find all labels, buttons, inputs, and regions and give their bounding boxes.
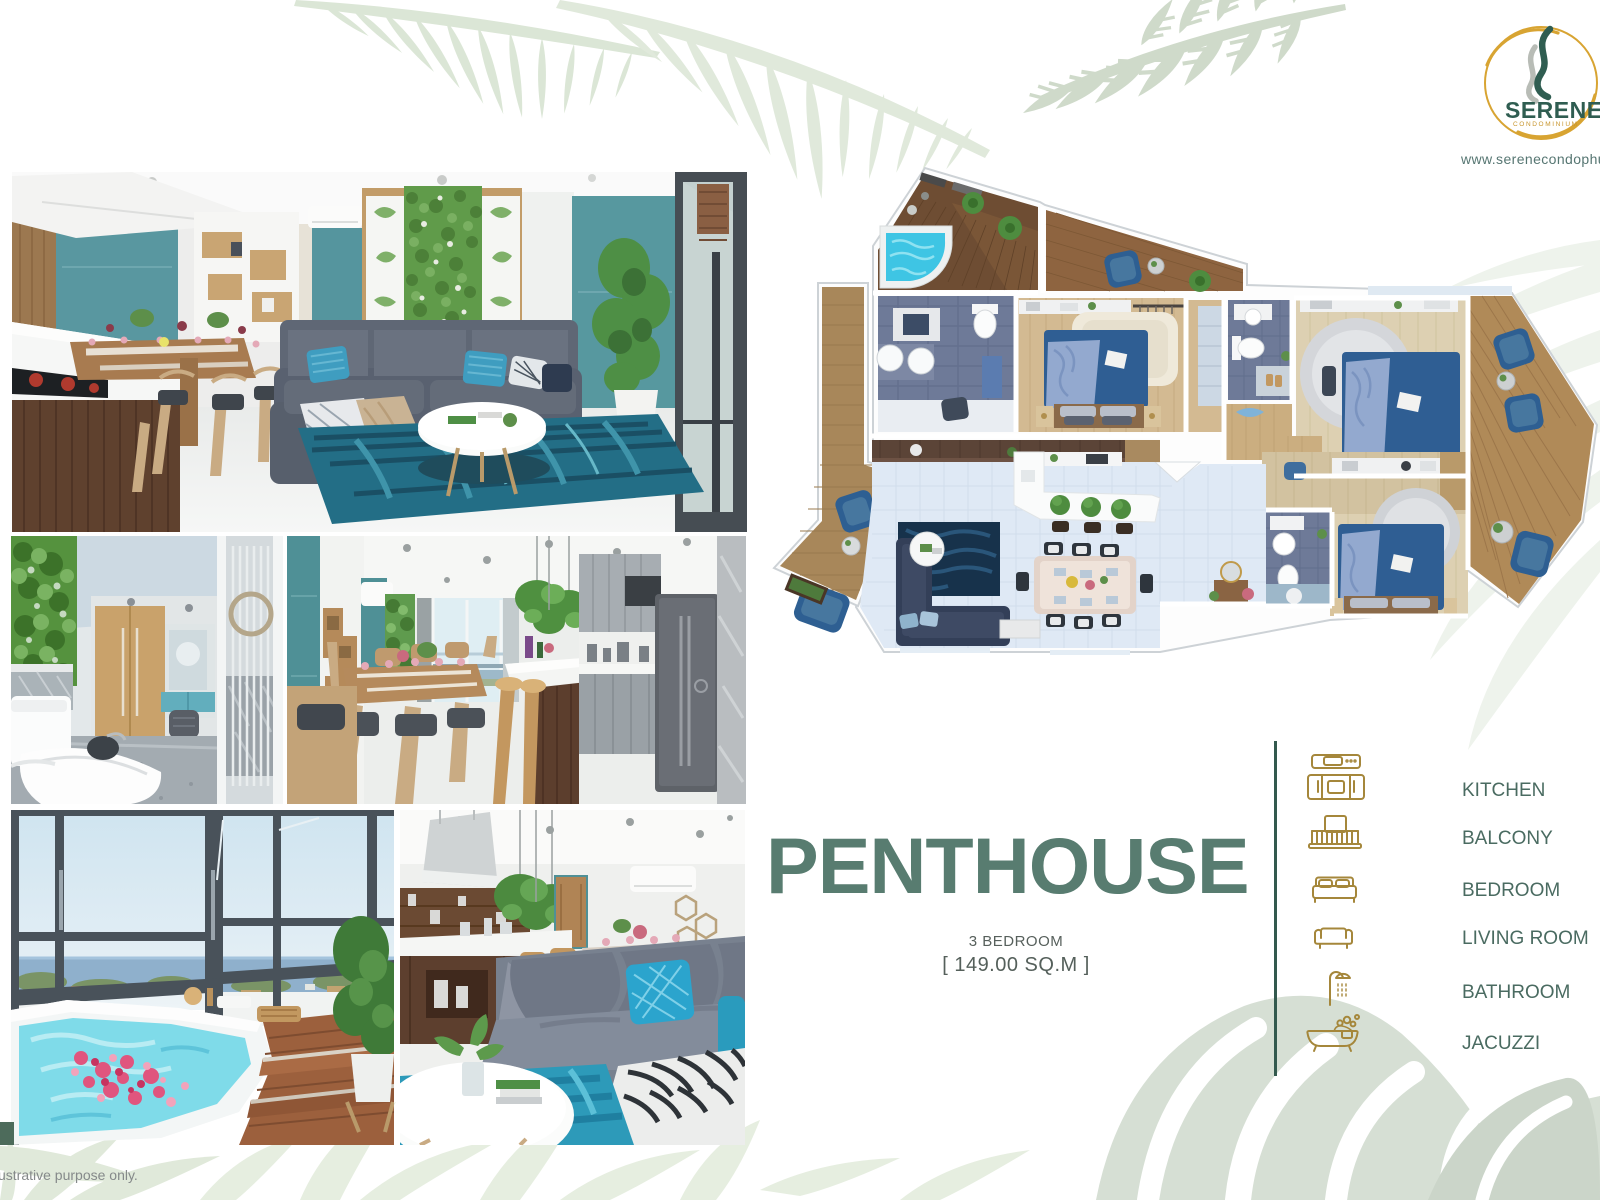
svg-text:SERENE: SERENE — [1505, 97, 1600, 123]
svg-text:CONDOMINIUM: CONDOMINIUM — [1513, 121, 1579, 128]
